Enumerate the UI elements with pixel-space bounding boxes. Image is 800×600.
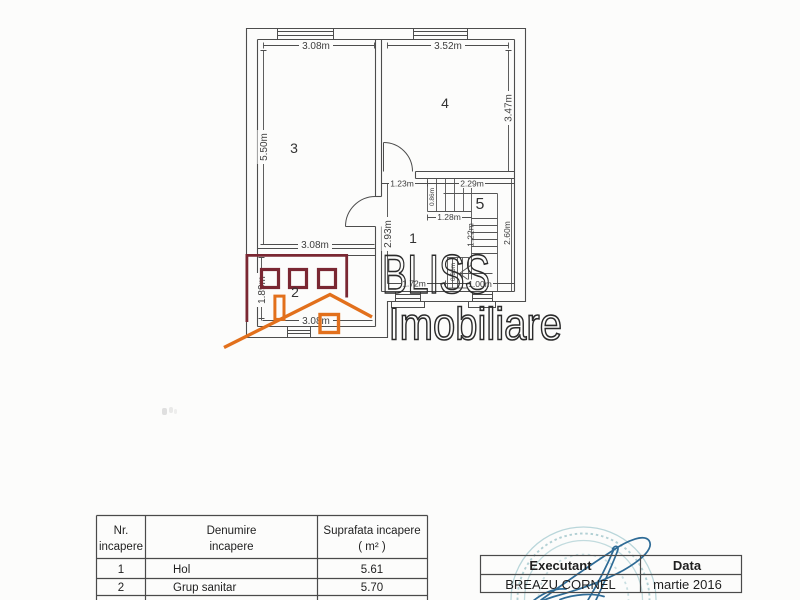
svg-text:Imobiliare: Imobiliare [389,299,563,350]
svg-text:Suprafata incapere: Suprafata incapere [323,525,420,537]
svg-text:3.08m: 3.08m [302,316,330,327]
svg-text:3: 3 [290,140,298,156]
svg-text:3.52m: 3.52m [434,41,462,52]
svg-text:Grup sanitar: Grup sanitar [173,582,236,594]
svg-text:3.08m: 3.08m [302,41,330,52]
svg-text:5.50m: 5.50m [259,133,270,161]
svg-text:2: 2 [118,582,124,594]
svg-text:3.08m: 3.08m [301,240,329,251]
svg-text:BLISS: BLISS [382,244,490,305]
svg-text:5.61: 5.61 [361,564,383,576]
svg-text:4: 4 [441,95,449,111]
svg-text:0.86m: 0.86m [429,188,436,206]
svg-text:BREAZU CORNEL: BREAZU CORNEL [505,577,616,592]
svg-text:1: 1 [118,564,124,576]
svg-text:2.60m: 2.60m [502,221,512,245]
svg-text:incapere: incapere [209,541,253,553]
svg-text:1.28m: 1.28m [437,212,461,222]
svg-text:5: 5 [476,196,485,213]
svg-text:Denumire: Denumire [207,525,257,537]
svg-text:martie 2016: martie 2016 [653,577,722,592]
svg-text:Nr.: Nr. [114,525,129,537]
svg-text:Hol: Hol [173,564,190,576]
svg-text:2.29m: 2.29m [460,178,484,188]
svg-text:( m² ): ( m² ) [358,541,386,553]
svg-text:3.47m: 3.47m [504,94,515,122]
svg-text:2: 2 [291,284,299,300]
svg-text:1.23m: 1.23m [390,178,414,188]
svg-text:Executant: Executant [529,558,592,573]
svg-text:incapere: incapere [99,541,143,553]
svg-text:5.70: 5.70 [361,582,383,594]
svg-text:Data: Data [673,558,702,573]
